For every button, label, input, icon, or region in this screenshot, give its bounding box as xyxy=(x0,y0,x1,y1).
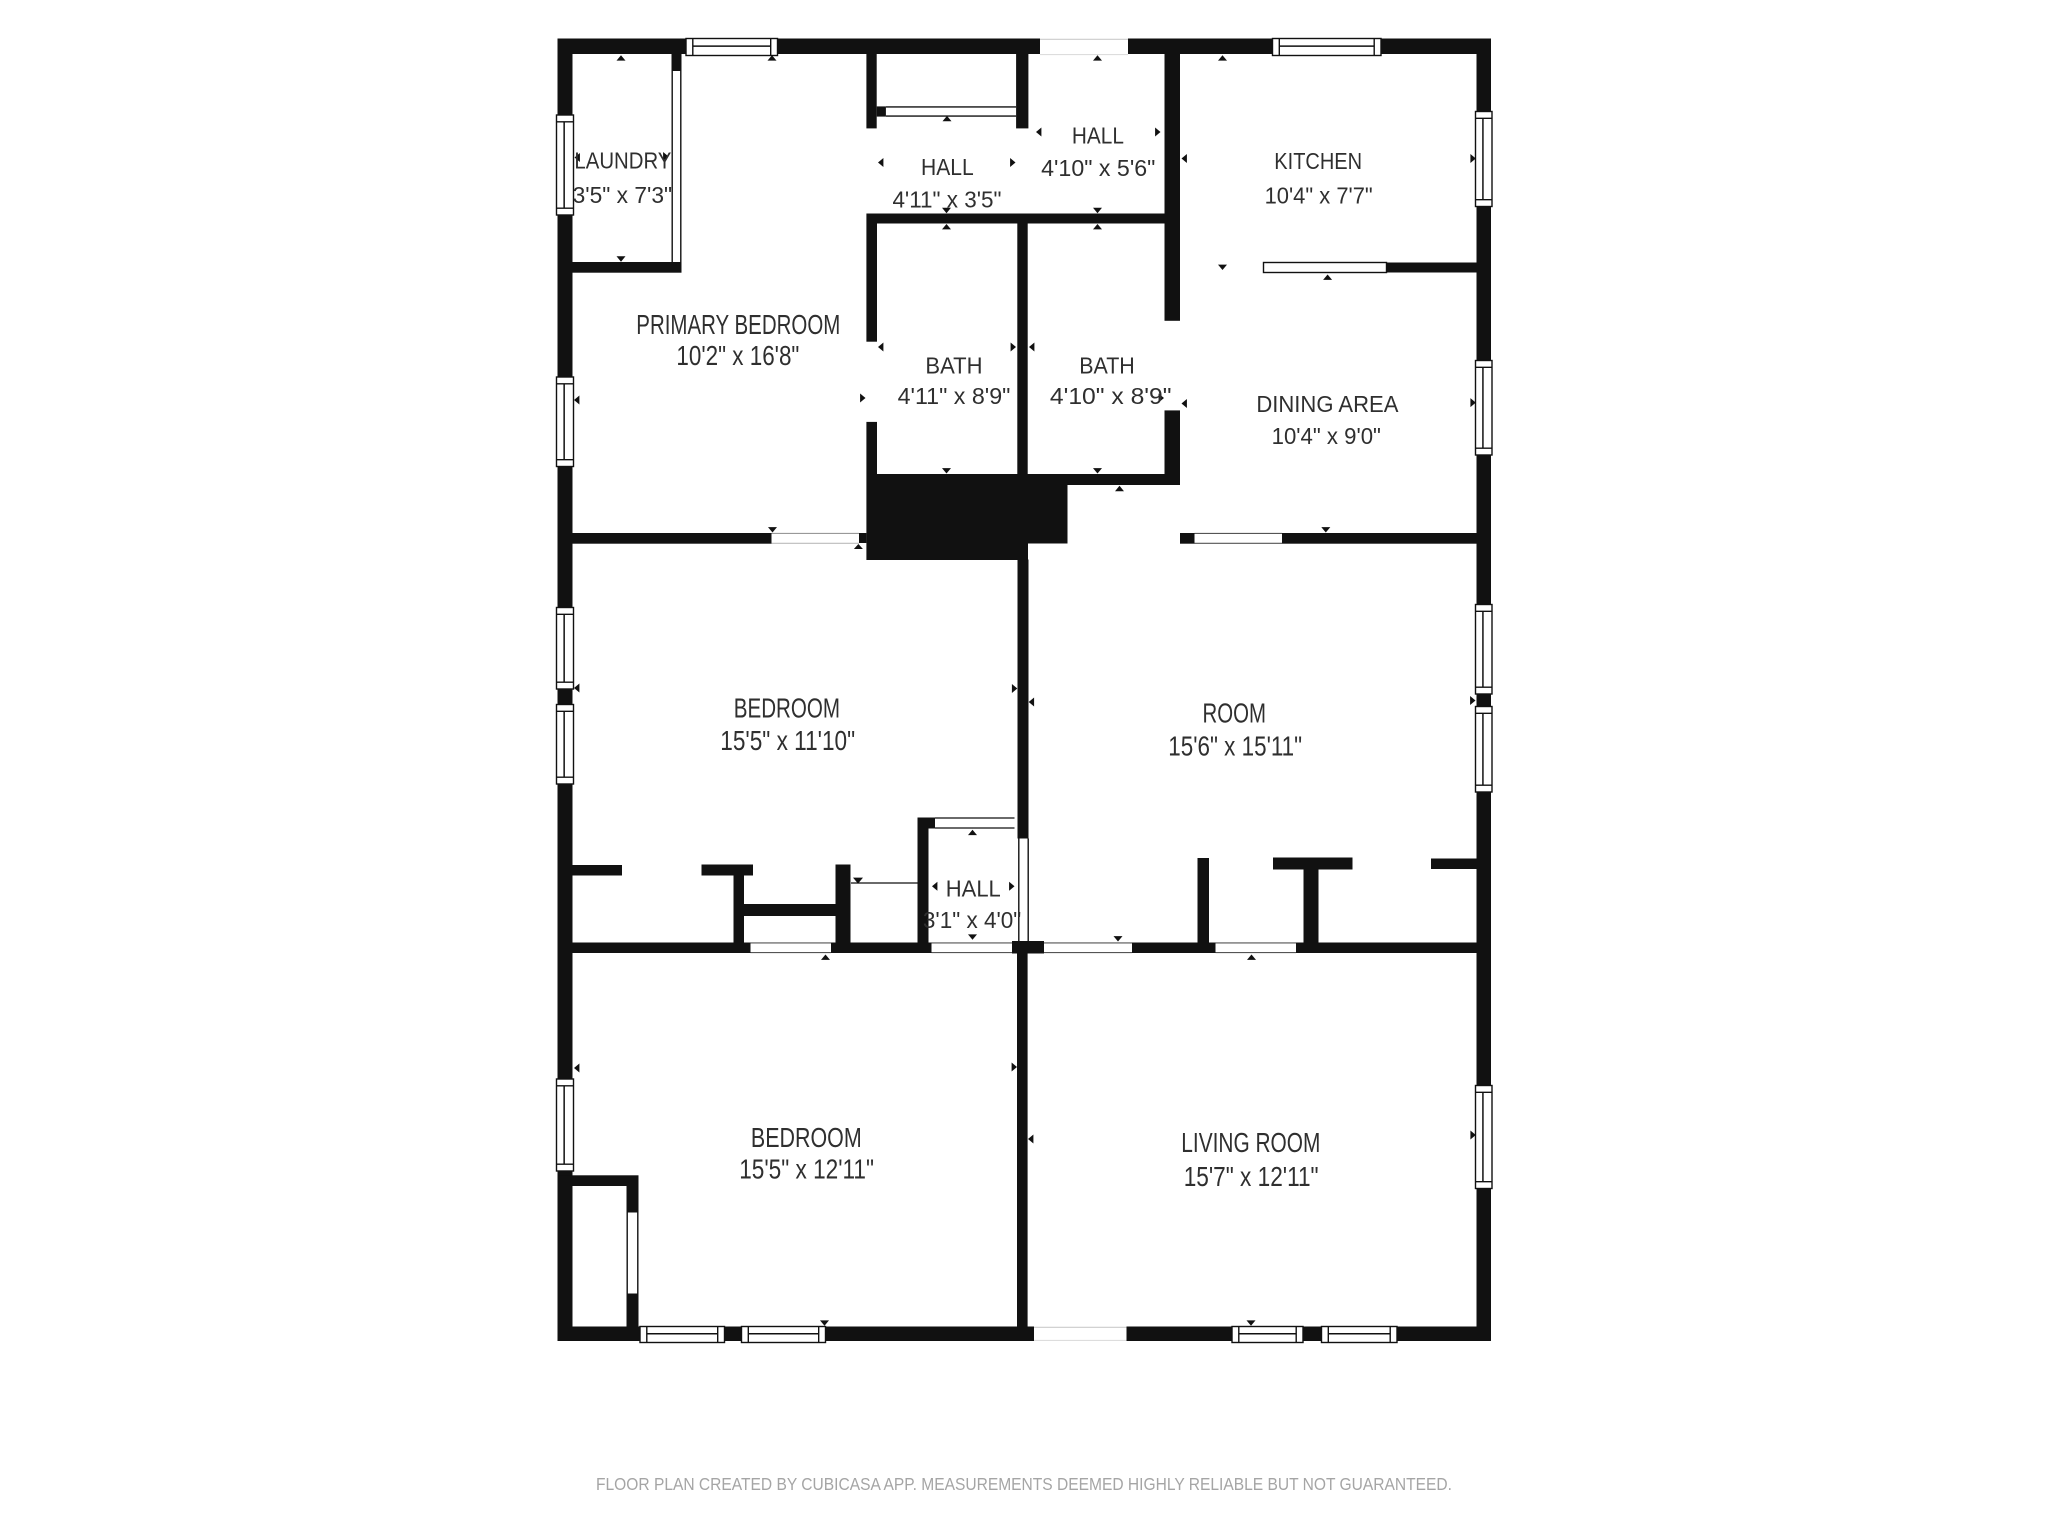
svg-text:BATH: BATH xyxy=(1079,353,1135,379)
svg-text:BATH: BATH xyxy=(925,353,982,379)
svg-text:10'4" x 7'7": 10'4" x 7'7" xyxy=(1265,183,1373,209)
svg-text:10'4" x 9'0": 10'4" x 9'0" xyxy=(1272,423,1381,449)
svg-text:15'5" x 11'10": 15'5" x 11'10" xyxy=(720,725,855,756)
svg-text:LAUNDRY: LAUNDRY xyxy=(574,148,671,174)
svg-text:HALL: HALL xyxy=(921,154,974,180)
svg-text:15'5" x 12'11": 15'5" x 12'11" xyxy=(739,1154,874,1185)
svg-text:PRIMARY BEDROOM: PRIMARY BEDROOM xyxy=(636,309,840,340)
svg-text:BEDROOM: BEDROOM xyxy=(734,692,840,723)
svg-text:3'1" x 4'0": 3'1" x 4'0" xyxy=(923,907,1021,933)
svg-text:ROOM: ROOM xyxy=(1203,698,1267,729)
svg-text:4'10" x 8'9": 4'10" x 8'9" xyxy=(1050,383,1172,409)
svg-text:3'5" x 7'3": 3'5" x 7'3" xyxy=(573,182,673,208)
svg-text:15'6" x 15'11": 15'6" x 15'11" xyxy=(1168,731,1302,762)
svg-text:4'11" x 8'9": 4'11" x 8'9" xyxy=(898,383,1011,409)
svg-text:4'11" x 3'5": 4'11" x 3'5" xyxy=(892,186,1001,212)
svg-text:4'10" x 5'6": 4'10" x 5'6" xyxy=(1041,155,1155,181)
svg-text:FLOOR PLAN CREATED BY CUBICASA: FLOOR PLAN CREATED BY CUBICASA APP. MEAS… xyxy=(596,1474,1452,1494)
svg-text:HALL: HALL xyxy=(946,876,1001,902)
svg-text:KITCHEN: KITCHEN xyxy=(1274,148,1362,174)
svg-text:HALL: HALL xyxy=(1072,123,1124,149)
svg-text:BEDROOM: BEDROOM xyxy=(751,1122,862,1153)
svg-text:10'2" x 16'8": 10'2" x 16'8" xyxy=(676,340,799,371)
svg-text:DINING AREA: DINING AREA xyxy=(1256,391,1399,417)
svg-text:LIVING ROOM: LIVING ROOM xyxy=(1181,1127,1320,1158)
svg-text:15'7" x 12'11": 15'7" x 12'11" xyxy=(1184,1161,1319,1192)
